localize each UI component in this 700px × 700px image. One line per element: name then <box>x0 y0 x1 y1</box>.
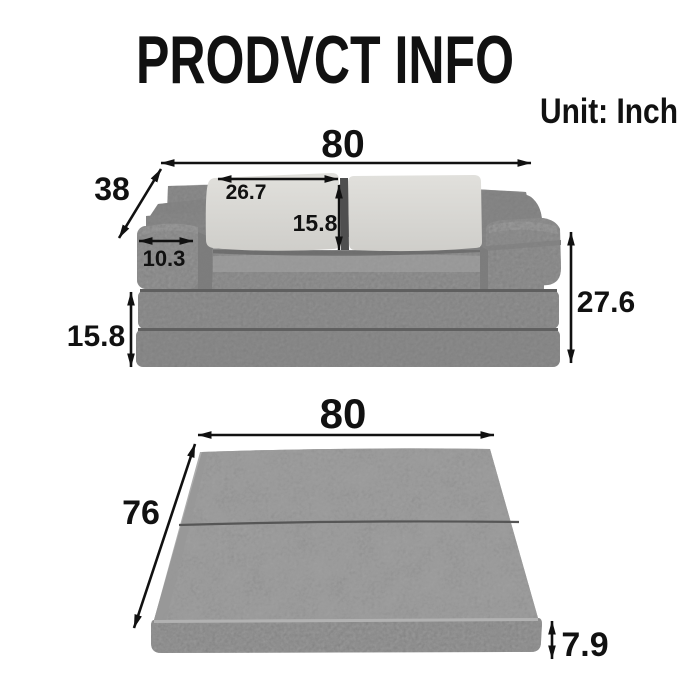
svg-text:80: 80 <box>321 123 364 166</box>
svg-text:Unit: Inch: Unit: Inch <box>540 92 678 131</box>
svg-text:26.7: 26.7 <box>226 181 267 204</box>
svg-text:15.8: 15.8 <box>67 320 125 353</box>
svg-text:76: 76 <box>122 494 160 532</box>
svg-text:PRODVCT INFO: PRODVCT INFO <box>136 22 514 98</box>
svg-text:80: 80 <box>320 390 367 437</box>
svg-text:10.3: 10.3 <box>143 246 186 271</box>
svg-text:38: 38 <box>94 171 130 207</box>
svg-text:15.8: 15.8 <box>293 210 338 236</box>
svg-text:27.6: 27.6 <box>577 286 635 319</box>
svg-text:7.9: 7.9 <box>561 626 608 664</box>
